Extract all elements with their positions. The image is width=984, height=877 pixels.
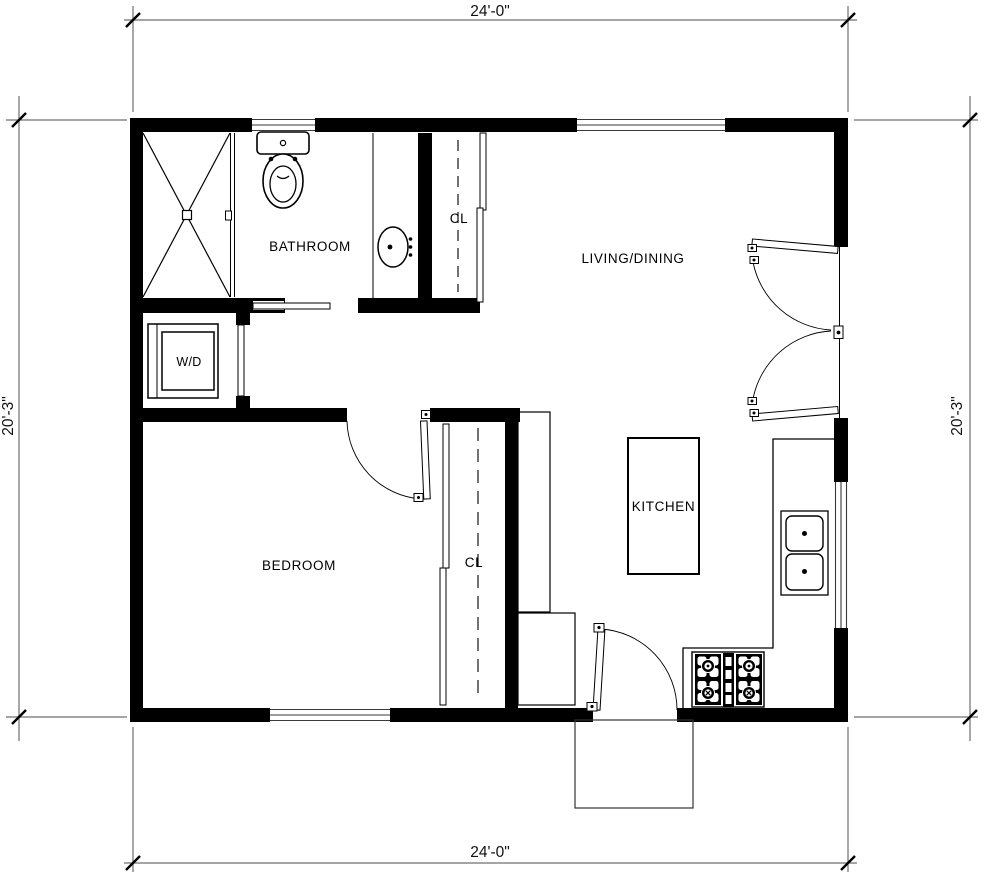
bathroom-sink: [378, 227, 408, 267]
window-living: [577, 118, 725, 132]
hall-closet-label: CL: [450, 211, 468, 226]
toilet: [257, 132, 309, 208]
shower: [143, 133, 235, 297]
bathroom-vanity: [373, 133, 412, 298]
window-bath: [252, 118, 315, 132]
bathroom-pocket-door: [253, 303, 330, 309]
dimension-left: [6, 96, 127, 741]
floor-plan-drawing: 24'-0" 24'-0" 20'-3" 20'-3": [0, 0, 984, 877]
floor-plan-page: 24'-0" 24'-0" 20'-3" 20'-3": [0, 0, 984, 877]
bedroom-closet-label: CL: [465, 555, 483, 570]
shower-drain: [183, 211, 192, 220]
bedroom-label: BEDROOM: [262, 558, 336, 573]
entry-porch: [575, 720, 693, 808]
sink-drain: [388, 245, 393, 250]
cooktop-grate-left: [695, 654, 721, 705]
dimension-left-label: 20'-3": [0, 396, 17, 435]
dimension-top: [124, 6, 857, 112]
bathroom-label: BATHROOM: [269, 239, 351, 254]
french-doors: [748, 239, 843, 421]
bedroom-closet-doors: [440, 424, 449, 705]
dimension-right-label: 20'-3": [949, 396, 966, 435]
window-bedroom: [270, 708, 390, 722]
dimension-top-label: 24'-0": [470, 3, 509, 20]
dimension-bottom-label: 24'-0": [470, 844, 509, 861]
kitchen-sink: [781, 511, 828, 595]
living-dining-label: LIVING/DINING: [581, 251, 684, 266]
bedroom-door: [347, 411, 431, 502]
laundry-label: W/D: [176, 355, 201, 369]
entry-door: [587, 624, 677, 712]
hall-closet-doors: [477, 133, 486, 302]
laundry-door: [238, 325, 244, 396]
cooktop: [692, 652, 764, 707]
faucet-handles: [409, 237, 413, 257]
cooktop-grate-right: [736, 654, 762, 705]
kitchen-label: KITCHEN: [632, 499, 695, 514]
window-kitchen: [834, 482, 848, 628]
cooktop-controls: [723, 653, 734, 707]
shower-door-handle: [226, 211, 232, 220]
